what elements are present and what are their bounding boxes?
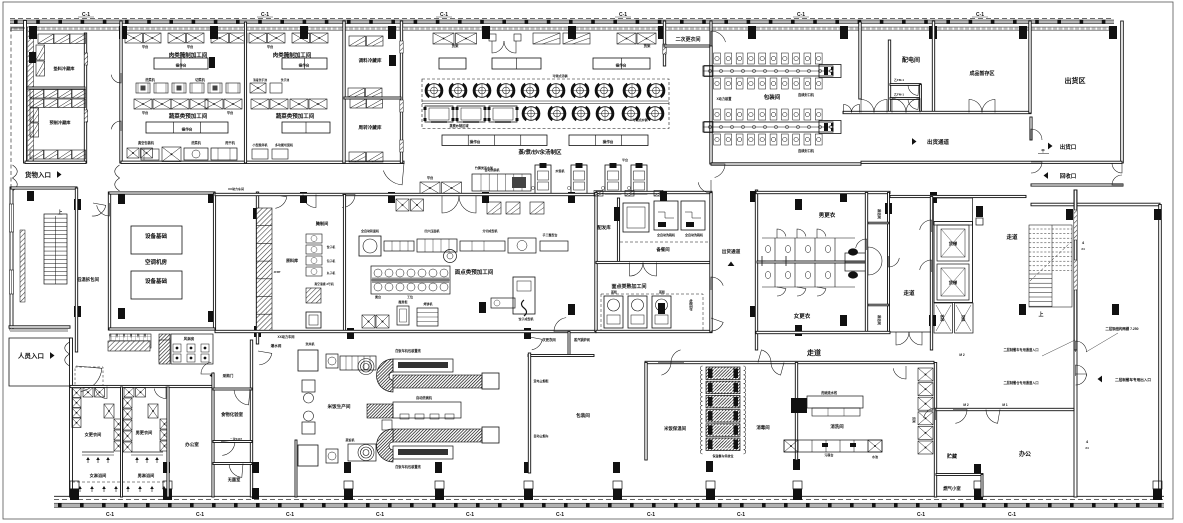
svg-text:蔬菜类预加工间: 蔬菜类预加工间 — [169, 112, 208, 120]
svg-text:受电占烟柜: 受电占烟柜 — [533, 378, 548, 383]
svg-text:案台: 案台 — [374, 294, 381, 299]
svg-text:丸子机: 丸子机 — [326, 271, 336, 275]
svg-text:货架: 货架 — [451, 43, 459, 48]
svg-text:真空包装机: 真空包装机 — [137, 140, 155, 145]
svg-text:操作台: 操作台 — [470, 139, 481, 144]
svg-text:C-1: C-1 — [1008, 512, 1016, 518]
svg-text:上: 上 — [57, 209, 62, 216]
svg-text:男淋浴间: 男淋浴间 — [138, 472, 155, 479]
svg-text:货梯: 货梯 — [949, 279, 958, 286]
svg-text:食物化验室: 食物化验室 — [221, 411, 244, 418]
svg-text:办公室: 办公室 — [185, 441, 199, 448]
svg-text:面点类预加工间: 面点类预加工间 — [455, 268, 494, 276]
svg-text:出货区: 出货区 — [1065, 76, 1086, 85]
svg-text:平台: 平台 — [622, 157, 628, 162]
svg-text:成品暂存区: 成品暂存区 — [969, 70, 994, 77]
svg-text:操作台: 操作台 — [182, 127, 193, 132]
svg-text:女更衣间: 女更衣间 — [85, 431, 102, 438]
svg-text:次更衣间: 次更衣间 — [542, 337, 556, 342]
svg-text:自动洗碗机: 自动洗碗机 — [416, 395, 433, 400]
svg-text:手工整型台: 手工整型台 — [542, 232, 557, 237]
svg-text:电磁蒸炉: 电磁蒸炉 — [689, 299, 694, 311]
svg-text:人员入口: 人员入口 — [18, 351, 44, 360]
svg-text:贮藏: 贮藏 — [946, 453, 957, 460]
svg-text:走道: 走道 — [902, 289, 915, 297]
svg-text:蒸煮炒制区域: 蒸煮炒制区域 — [449, 123, 469, 128]
svg-text:洗手池: 洗手池 — [281, 78, 290, 82]
svg-text:面点类熟加工间: 面点类熟加工间 — [611, 283, 646, 290]
svg-text:白饭车机包装置线: 白饭车机包装置线 — [395, 464, 421, 469]
svg-text:乙FM-1: 乙FM-1 — [894, 92, 904, 97]
svg-text:自动洗碗机: 自动洗碗机 — [484, 167, 499, 172]
svg-text:连续封口机: 连续封口机 — [798, 92, 815, 97]
svg-text:客梯: 客梯 — [940, 314, 945, 322]
svg-text:小型搅拌机: 小型搅拌机 — [252, 142, 267, 147]
svg-text:设备基础: 设备基础 — [145, 277, 168, 285]
svg-text:平台: 平台 — [187, 44, 194, 49]
svg-text:M 2: M 2 — [963, 403, 969, 407]
svg-text:蒸/煮/炒/汆汤制区: 蒸/煮/炒/汆汤制区 — [517, 148, 562, 156]
svg-text:烤饼机: 烤饼机 — [423, 301, 432, 306]
svg-text:平台: 平台 — [142, 44, 149, 49]
svg-text:货梯: 货梯 — [949, 240, 958, 247]
svg-text:切菜机: 切菜机 — [195, 77, 205, 82]
svg-text:多功能切菜机: 多功能切菜机 — [275, 142, 293, 147]
svg-text:可倾式炒锅: 可倾式炒锅 — [632, 117, 647, 122]
svg-text:男更衣: 男更衣 — [819, 211, 836, 219]
svg-text:X动力装置: X动力装置 — [717, 96, 733, 101]
svg-text:货物入口: 货物入口 — [24, 170, 51, 179]
svg-text:洗碗流水线: 洗碗流水线 — [821, 390, 838, 395]
svg-text:饺子成型机: 饺子成型机 — [518, 316, 533, 321]
svg-text:空调机房: 空调机房 — [145, 258, 168, 266]
svg-text:连续封口机: 连续封口机 — [798, 148, 815, 153]
svg-text:消洗间: 消洗间 — [830, 423, 844, 430]
svg-text:潲水间: 潲水间 — [271, 343, 282, 348]
svg-text:米饭保温间: 米饭保温间 — [664, 425, 687, 432]
svg-text:周转冷藏库: 周转冷藏库 — [359, 124, 382, 131]
svg-text:出货通道: 出货通道 — [927, 138, 950, 146]
svg-text:蔬菜类预加工间: 蔬菜类预加工间 — [276, 112, 315, 120]
svg-text:垫料冷藏库: 垫料冷藏库 — [54, 65, 76, 72]
svg-text:自动占烟车: 自动占烟车 — [533, 433, 548, 438]
svg-text:回收口: 回收口 — [1060, 172, 1077, 180]
svg-text:洗菜机: 洗菜机 — [145, 77, 155, 82]
svg-text:配电间: 配电间 — [902, 56, 920, 64]
svg-text:可倾式汤锅: 可倾式汤锅 — [552, 73, 567, 78]
svg-text:米饭生产间: 米饭生产间 — [328, 403, 351, 410]
svg-text:无菌室: 无菌室 — [227, 476, 241, 483]
svg-text:真空滚揉-2号机: 真空滚揉-2号机 — [314, 282, 333, 286]
svg-text:二次更衣间: 二次更衣间 — [675, 36, 700, 43]
svg-text:腌制间: 腌制间 — [316, 220, 329, 227]
svg-text:乙FM-1: 乙FM-1 — [894, 77, 904, 82]
svg-text:低温拆包间: 低温拆包间 — [76, 276, 100, 283]
svg-text:走道: 走道 — [1005, 233, 1018, 241]
svg-text:淋浴间: 淋浴间 — [877, 209, 882, 220]
svg-text:全自动洗碗机: 全自动洗碗机 — [656, 232, 675, 237]
svg-text:二层钢结构雨棚 7.250: 二层钢结构雨棚 7.250 — [1105, 326, 1138, 331]
svg-text:女更衣: 女更衣 — [794, 312, 811, 320]
svg-text:货梯: 货梯 — [961, 314, 966, 322]
svg-text:C-1: C-1 — [466, 512, 474, 518]
svg-text:二次X437: 二次X437 — [230, 437, 243, 441]
svg-text:C-1: C-1 — [556, 512, 564, 518]
svg-text:操作台: 操作台 — [176, 63, 187, 68]
svg-text:平台: 平台 — [427, 175, 434, 180]
svg-text:C-1: C-1 — [917, 512, 925, 518]
svg-text:男更衣间: 男更衣间 — [136, 429, 153, 436]
svg-text:炒菜机: 炒菜机 — [555, 168, 564, 173]
svg-text:出货口: 出货口 — [1060, 143, 1077, 151]
svg-text:货架: 货架 — [912, 417, 917, 423]
svg-text:包装间: 包装间 — [764, 93, 781, 101]
svg-text:走道: 走道 — [807, 348, 821, 357]
svg-text:饺子机: 饺子机 — [327, 245, 336, 249]
svg-text:平台: 平台 — [267, 44, 274, 49]
svg-text:全自动洗碗机: 全自动洗碗机 — [684, 232, 703, 237]
svg-text:24: 24 — [1085, 446, 1089, 450]
svg-text:污碟台: 污碟台 — [824, 452, 833, 457]
svg-text:XX动力车间: XX动力车间 — [228, 186, 244, 191]
svg-text:甩干机: 甩干机 — [224, 140, 235, 145]
svg-text:白饭车机包装置线: 白饭车机包装置线 — [395, 348, 421, 353]
svg-text:风淋房: 风淋房 — [184, 336, 195, 341]
svg-text:蒸柜: 蒸柜 — [611, 289, 617, 294]
svg-text:燃气小室: 燃气小室 — [943, 485, 961, 492]
svg-text:醒发柜: 醒发柜 — [398, 299, 407, 304]
svg-text:4FRP: 4FRP — [274, 270, 281, 274]
svg-text:预制冷藏库: 预制冷藏库 — [50, 119, 72, 126]
svg-text:二层制餐车专用出入口: 二层制餐车专用出入口 — [1115, 377, 1151, 382]
svg-text:洗菜机: 洗菜机 — [191, 140, 201, 145]
svg-text:分切成型机: 分切成型机 — [482, 228, 497, 233]
svg-text:操作台: 操作台 — [616, 63, 627, 68]
svg-text:保温餐车停放位: 保温餐车停放位 — [711, 453, 733, 458]
svg-text:办公: 办公 — [1019, 450, 1031, 458]
svg-text:全自动和面机: 全自动和面机 — [360, 228, 379, 233]
svg-text:蒸汽锅炉间: 蒸汽锅炉间 — [574, 337, 590, 342]
svg-text:C-1: C-1 — [106, 512, 114, 518]
svg-text:备餐间: 备餐间 — [655, 246, 670, 253]
svg-text:消毒间: 消毒间 — [756, 424, 770, 431]
svg-text:C-1: C-1 — [376, 512, 384, 518]
svg-text:淋浴间: 淋浴间 — [877, 315, 882, 326]
svg-text:C-1: C-1 — [286, 512, 294, 518]
svg-text:原料库: 原料库 — [285, 257, 298, 263]
svg-text:操作台: 操作台 — [603, 139, 614, 144]
svg-text:出货通道: 出货通道 — [722, 248, 741, 255]
svg-text:女淋浴间: 女淋浴间 — [90, 472, 107, 479]
svg-text:采购门: 采购门 — [222, 373, 234, 378]
svg-text:C-1: C-1 — [647, 512, 655, 518]
svg-text:平台: 平台 — [142, 110, 149, 115]
svg-text:消毒洗手池: 消毒洗手池 — [252, 78, 267, 82]
svg-text:二层制餐车专用通道入口: 二层制餐车专用通道入口 — [1003, 347, 1038, 352]
svg-text:洗米机: 洗米机 — [305, 341, 314, 346]
svg-text:M 2: M 2 — [959, 353, 965, 357]
svg-text:M 1: M 1 — [1002, 403, 1008, 407]
svg-text:C-1: C-1 — [196, 512, 204, 518]
svg-text:XX动力车间: XX动力车间 — [277, 334, 294, 339]
svg-text:操作台: 操作台 — [299, 63, 310, 68]
svg-text:包子机: 包子机 — [326, 259, 336, 263]
svg-text:蒸饭机: 蒸饭机 — [345, 437, 354, 442]
svg-text:调料冷藏库: 调料冷藏库 — [359, 57, 382, 64]
svg-text:二层制餐仓专用通道入口: 二层制餐仓专用通道入口 — [1003, 380, 1038, 385]
svg-text:平台: 平台 — [227, 110, 234, 115]
svg-text:工位: 工位 — [407, 294, 413, 299]
svg-text:配发库: 配发库 — [597, 224, 611, 231]
svg-text:C-1: C-1 — [737, 512, 745, 518]
svg-text:包装间: 包装间 — [576, 412, 590, 419]
svg-text:四六压面机: 四六压面机 — [424, 228, 439, 233]
svg-text:干: 干 — [1041, 148, 1045, 153]
svg-text:蒸柜: 蒸柜 — [659, 289, 665, 294]
svg-text:货架: 货架 — [643, 43, 651, 48]
svg-text:24: 24 — [1081, 247, 1085, 251]
svg-text:水池: 水池 — [872, 454, 878, 459]
svg-text:设备基础: 设备基础 — [145, 232, 168, 240]
svg-text:上: 上 — [1038, 311, 1043, 318]
